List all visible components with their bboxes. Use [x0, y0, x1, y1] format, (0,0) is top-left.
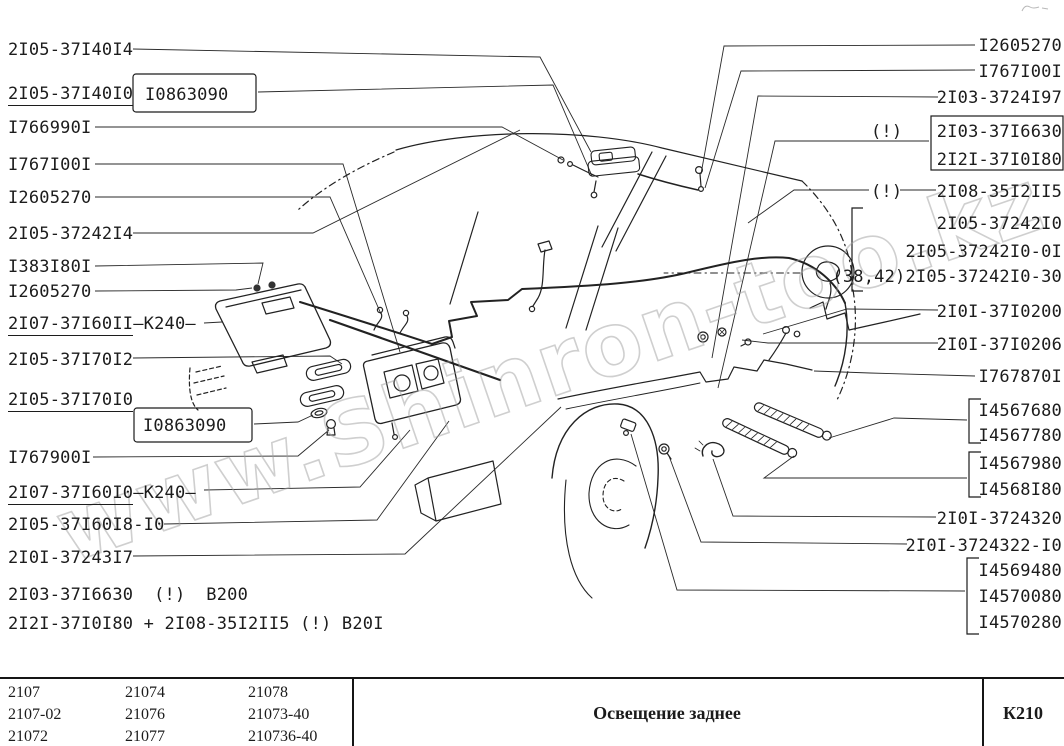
model-code: 2107-02 — [8, 707, 61, 723]
leader-lines — [93, 45, 975, 591]
part-number-label: 2I05-37242I4 — [8, 225, 133, 244]
part-number: 2I07-37I60II — [8, 314, 133, 336]
part-number-label: I767I00I — [8, 156, 91, 175]
part-number-label: 2I03-3724I97 — [937, 89, 1062, 108]
watermark: www.Shinron-too.kz — [35, 152, 1064, 580]
part-number-label: I766990I — [8, 119, 91, 138]
part-number-label: I767900I — [8, 449, 91, 468]
part-number-label: 2I05-37I60I8-I0 — [8, 516, 165, 535]
part-number: 2I07-37I60I0 — [8, 483, 133, 505]
part-number-label: I2605270 — [8, 189, 91, 208]
part-number-label: 2I0I-37243I7 — [8, 549, 133, 568]
part-number-label: 2I05-37242I0 — [937, 215, 1062, 234]
tail-lamp-lens — [216, 284, 331, 373]
model-code: 2107 — [8, 685, 40, 701]
model-code: 21072 — [8, 729, 48, 745]
part-number-label: (38,42)2I05-37242I0-30 — [832, 268, 1062, 287]
part-number-label: I767870I — [979, 368, 1062, 387]
harness-strap — [721, 417, 798, 459]
dome-lamp — [587, 146, 640, 176]
grommet-detail — [664, 246, 854, 309]
model-code: 21076 — [125, 707, 165, 723]
part-number-label: 2I05-37242I0-0I — [905, 243, 1062, 262]
part-number-label: 2I03-37I6630 (!) B200 — [8, 586, 248, 605]
part-number-label: (!) — [871, 123, 902, 142]
sheet-code: К210 — [982, 704, 1064, 722]
part-number-label: I383I80I — [8, 258, 91, 277]
model-code: 21073-40 — [248, 707, 309, 723]
part-number: 2I05-37I70I0 — [8, 390, 133, 412]
part-number-label: 2I0I-37I0200 — [937, 303, 1062, 322]
part-number-label: 2I07-37I60II–К240– — [8, 315, 196, 334]
part-number-label: 2I05-37I70I2 — [8, 351, 133, 370]
part-number-label: 2I05-37I40I0 — [8, 85, 133, 104]
section-title: Освещение заднее — [352, 704, 982, 722]
part-number-label: (!) — [871, 183, 902, 202]
tail-lamp-housing — [364, 337, 461, 440]
part-number-label: I2605270 — [8, 283, 91, 302]
part-number-label: I767I00I — [979, 63, 1062, 82]
part-number-label: 2I2I-37I0I80 — [937, 151, 1062, 170]
part-number-label: I4570280 — [979, 614, 1062, 633]
part-number-label: I4568I80 — [979, 481, 1062, 500]
part-number-label: I0863090 — [143, 417, 226, 436]
part-number-label: 2I0I-3724322-I0 — [905, 537, 1062, 556]
part-number-label: 2I05-37I40I4 — [8, 41, 133, 60]
car-body-drawing — [189, 134, 920, 598]
part-number-label: 2I0I-3724320 — [937, 510, 1062, 529]
part-number-label: I0863090 — [145, 86, 228, 105]
part-number-label: I4570080 — [979, 588, 1062, 607]
harness-strap — [753, 401, 833, 442]
model-code: 21074 — [125, 685, 165, 701]
part-number-label: I4567980 — [979, 455, 1062, 474]
footer-table: 21072107-0221072210742107621077210782107… — [0, 677, 1064, 746]
model-code: 21077 — [125, 729, 165, 745]
part-number: 2I05-37I40I0 — [8, 84, 133, 106]
part-number-label: I2605270 — [979, 37, 1062, 56]
part-number-label: 2I05-37I70I0 — [8, 391, 133, 410]
part-number-label: 2I2I-37I0I80 + 2I08-35I2II5 (!) B20I — [8, 615, 384, 634]
model-code: 210736-40 — [248, 729, 317, 745]
part-number-label: 2I03-37I6630 — [937, 123, 1062, 142]
model-code: 21078 — [248, 685, 288, 701]
part-number-label: I4567680 — [979, 402, 1062, 421]
catalog-page: www.Shinron-too.kz 2I05-37I40I42I05-37I4… — [0, 0, 1064, 744]
part-number-label: 2I0I-37I0206 — [937, 336, 1062, 355]
part-number-label: I4569480 — [979, 562, 1062, 581]
part-number-label: 2I08-35I2II5 — [937, 183, 1062, 202]
part-number-label: 2I07-37I60I0–К240– — [8, 484, 196, 503]
part-number-label: I4567780 — [979, 427, 1062, 446]
corner-scribble-mark — [1022, 6, 1048, 11]
